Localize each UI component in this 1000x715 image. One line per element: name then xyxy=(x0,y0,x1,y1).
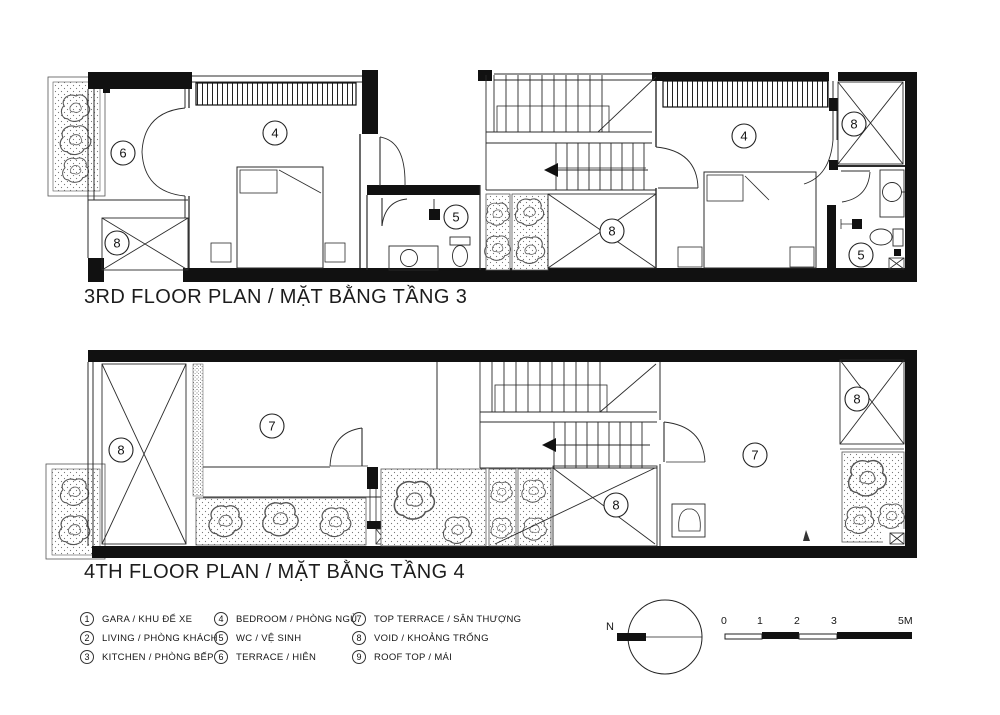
wash-basin xyxy=(672,504,705,537)
compass-needle xyxy=(617,633,646,641)
legend-item-label: VOID / KHOẢNG TRỐNG xyxy=(374,633,489,644)
room-label-circle: 8 xyxy=(600,219,624,243)
room-label-circle: 8 xyxy=(842,112,866,136)
drain-box xyxy=(883,529,905,546)
svg-text:8: 8 xyxy=(850,117,857,132)
legend-item: 9 ROOF TOP / MÁI xyxy=(352,650,521,664)
scale-tick-label: 1 xyxy=(757,615,763,627)
scale-tick-label: 3 xyxy=(831,615,837,627)
legend-item: 8 VOID / KHOẢNG TRỐNG xyxy=(352,631,521,645)
legend-item-label: WC / VỆ SINH xyxy=(236,633,301,644)
svg-text:8: 8 xyxy=(612,498,619,513)
legend-item: 7 TOP TERRACE / SÂN THƯỢNG xyxy=(352,612,521,626)
legend-item: 1 GARA / KHU ĐỂ XE xyxy=(80,612,218,626)
wardrobe xyxy=(196,81,828,107)
room-label-circle: 7 xyxy=(260,414,284,438)
legend-item-label: ROOF TOP / MÁI xyxy=(374,652,452,663)
north-label: N xyxy=(606,621,614,633)
bed xyxy=(678,172,816,268)
scale-bar-graphic xyxy=(725,632,912,639)
room-label-circle: 4 xyxy=(732,124,756,148)
svg-text:4: 4 xyxy=(271,126,278,141)
legend-item: 3 KITCHEN / PHÒNG BẾP xyxy=(80,650,218,664)
floor4-title: 4TH FLOOR PLAN / MẶT BẰNG TẦNG 4 xyxy=(84,561,465,584)
terrace-door xyxy=(330,428,368,466)
stairs xyxy=(486,75,656,190)
terrace-room xyxy=(142,108,185,196)
legend-item-label: KITCHEN / PHÒNG BẾP xyxy=(102,652,214,663)
north-compass xyxy=(617,600,702,674)
floor4-plan xyxy=(46,350,917,559)
room-label-circle: 8 xyxy=(105,231,129,255)
room-label-circle: 7 xyxy=(743,443,767,467)
room-label-circle: 8 xyxy=(109,438,133,462)
room-label-circle: 4 xyxy=(263,121,287,145)
legend-item-number: 5 xyxy=(214,631,228,645)
svg-text:8: 8 xyxy=(117,443,124,458)
legend-item-number: 3 xyxy=(80,650,94,664)
room-labels: 6 8 4 5 8 4 8 5 xyxy=(105,112,873,517)
legend-item-number: 4 xyxy=(214,612,228,626)
legend-item-label: TOP TERRACE / SÂN THƯỢNG xyxy=(374,614,521,625)
legend-item-number: 6 xyxy=(214,650,228,664)
floor-plans-drawing: 6 8 4 5 8 4 8 5 xyxy=(0,0,1000,715)
room-label-circle: 8 xyxy=(845,387,869,411)
planter-right xyxy=(842,452,905,542)
legend-item-label: LIVING / PHÒNG KHÁCH xyxy=(102,633,218,644)
legend-item-label: GARA / KHU ĐỂ XE xyxy=(102,614,192,625)
scale-tick-label: 5M xyxy=(898,615,913,627)
legend-item-label: BEDROOM / PHÒNG NGỦ xyxy=(236,614,357,625)
stipple-screen-wall xyxy=(193,364,203,496)
room-label-circle: 5 xyxy=(849,243,873,267)
floor4-exterior-planter xyxy=(46,464,105,559)
hall-door xyxy=(380,137,405,186)
floor3-exterior-planter xyxy=(48,77,105,196)
svg-text:8: 8 xyxy=(608,224,615,239)
floor3-title: 3RD FLOOR PLAN / MẶT BẰNG TẦNG 3 xyxy=(84,286,467,309)
svg-text:4: 4 xyxy=(740,129,747,144)
small-figure xyxy=(803,530,810,541)
bed xyxy=(211,167,345,268)
legend-column: 1 GARA / KHU ĐỂ XE 2 LIVING / PHÒNG KHÁC… xyxy=(80,612,218,664)
legend-column: 4 BEDROOM / PHÒNG NGỦ 5 WC / VỆ SINH 6 T… xyxy=(214,612,357,664)
svg-text:7: 7 xyxy=(268,419,275,434)
legend-item: 6 TERRACE / HIÊN xyxy=(214,650,357,664)
scale-tick-label: 0 xyxy=(721,615,727,627)
legend-item-number: 1 xyxy=(80,612,94,626)
legend-item: 2 LIVING / PHÒNG KHÁCH xyxy=(80,631,218,645)
legend-item: 4 BEDROOM / PHÒNG NGỦ xyxy=(214,612,357,626)
scale-tick-label: 2 xyxy=(794,615,800,627)
svg-text:8: 8 xyxy=(113,236,120,251)
room-label-circle: 8 xyxy=(604,493,628,517)
room-label-circle: 5 xyxy=(444,205,468,229)
planters-mid xyxy=(485,194,548,270)
legend-item-number: 9 xyxy=(352,650,366,664)
legend-item-number: 8 xyxy=(352,631,366,645)
legend-column: 7 TOP TERRACE / SÂN THƯỢNG 8 VOID / KHOẢ… xyxy=(352,612,521,664)
svg-text:5: 5 xyxy=(857,248,864,263)
legend-item-number: 7 xyxy=(352,612,366,626)
legend-item-number: 2 xyxy=(80,631,94,645)
svg-text:6: 6 xyxy=(119,146,126,161)
svg-text:5: 5 xyxy=(452,210,459,225)
terrace-right-door xyxy=(664,422,705,462)
legend-item: 5 WC / VỆ SINH xyxy=(214,631,357,645)
planter-boxes-mid xyxy=(381,469,551,546)
svg-text:8: 8 xyxy=(853,392,860,407)
stairs xyxy=(480,362,657,468)
floor-plan-sheet: { "plans": [ { "title": "3RD FLOOR PLAN … xyxy=(0,0,1000,715)
legend-item-label: TERRACE / HIÊN xyxy=(236,652,316,663)
svg-text:7: 7 xyxy=(751,448,758,463)
planter-band-left xyxy=(196,498,366,545)
room-label-circle: 6 xyxy=(111,141,135,165)
floor3-plan xyxy=(48,70,917,282)
